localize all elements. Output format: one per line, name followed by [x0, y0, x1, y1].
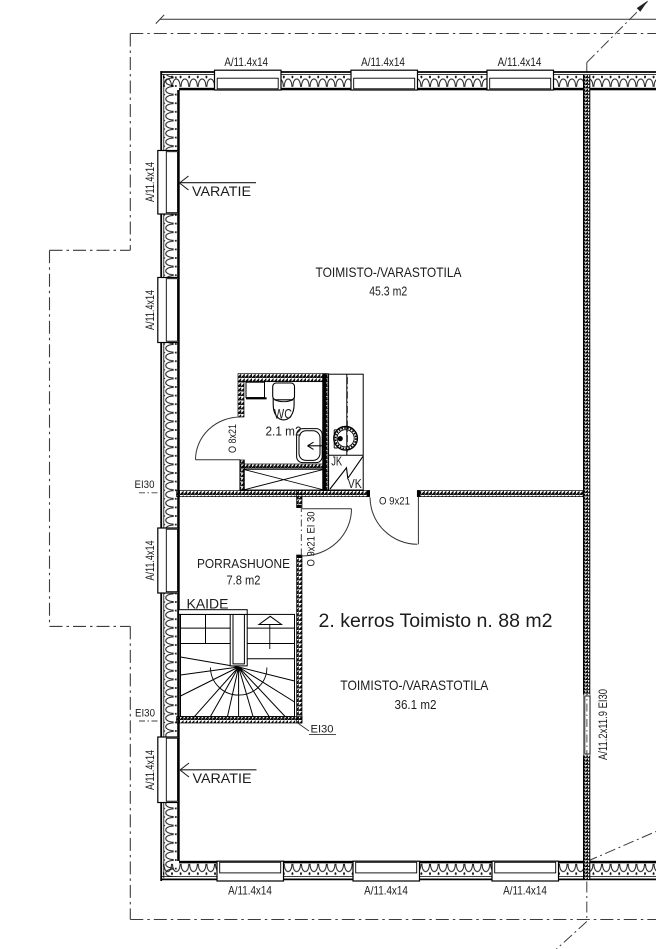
svg-text:O 9x21 EI 30: O 9x21 EI 30 — [306, 512, 318, 567]
svg-text:A/11.4x14: A/11.4x14 — [228, 883, 272, 897]
svg-text:A/11.4x14: A/11.4x14 — [364, 883, 408, 897]
svg-text:VARATIE: VARATIE — [193, 771, 252, 786]
svg-text:TOIMISTO-/VARASTOTILA: TOIMISTO-/VARASTOTILA — [316, 265, 463, 280]
svg-text:O 9x21: O 9x21 — [379, 495, 410, 507]
svg-text:EI30: EI30 — [311, 724, 334, 736]
svg-text:A/11.2x11.9 EI30: A/11.2x11.9 EI30 — [598, 689, 610, 760]
svg-text:O 8x21: O 8x21 — [227, 424, 239, 453]
svg-text:A/11.4x14: A/11.4x14 — [143, 290, 157, 330]
svg-text:A/11.4x14: A/11.4x14 — [143, 750, 157, 790]
svg-text:A/11.4x14: A/11.4x14 — [361, 55, 405, 69]
svg-text:EI30: EI30 — [135, 707, 155, 719]
svg-text:VARATIE: VARATIE — [192, 184, 251, 199]
svg-text:JK: JK — [331, 455, 342, 469]
svg-text:A/11.4x14: A/11.4x14 — [498, 55, 542, 69]
svg-text:A/11.4x14: A/11.4x14 — [224, 55, 268, 69]
svg-text:TOIMISTO-/VARASTOTILA: TOIMISTO-/VARASTOTILA — [340, 678, 489, 693]
svg-text:36.1 m2: 36.1 m2 — [395, 697, 437, 712]
svg-text:A/11.4x14: A/11.4x14 — [503, 883, 547, 897]
svg-text:7.8 m2: 7.8 m2 — [227, 574, 261, 588]
svg-text:45.3 m2: 45.3 m2 — [369, 284, 407, 299]
svg-text:VK: VK — [348, 477, 363, 491]
svg-text:A/11.4x14: A/11.4x14 — [143, 162, 157, 202]
svg-text:WC: WC — [274, 406, 292, 422]
svg-text:2. kerros Toimisto n. 88 m2: 2. kerros Toimisto n. 88 m2 — [319, 611, 553, 632]
svg-text:PORRASHUONE: PORRASHUONE — [197, 556, 290, 571]
svg-text:2.1 m2: 2.1 m2 — [266, 425, 302, 439]
svg-text:A/11.4x14: A/11.4x14 — [143, 540, 157, 580]
svg-text:EI30: EI30 — [135, 479, 155, 491]
svg-text:KAIDE: KAIDE — [187, 596, 229, 611]
